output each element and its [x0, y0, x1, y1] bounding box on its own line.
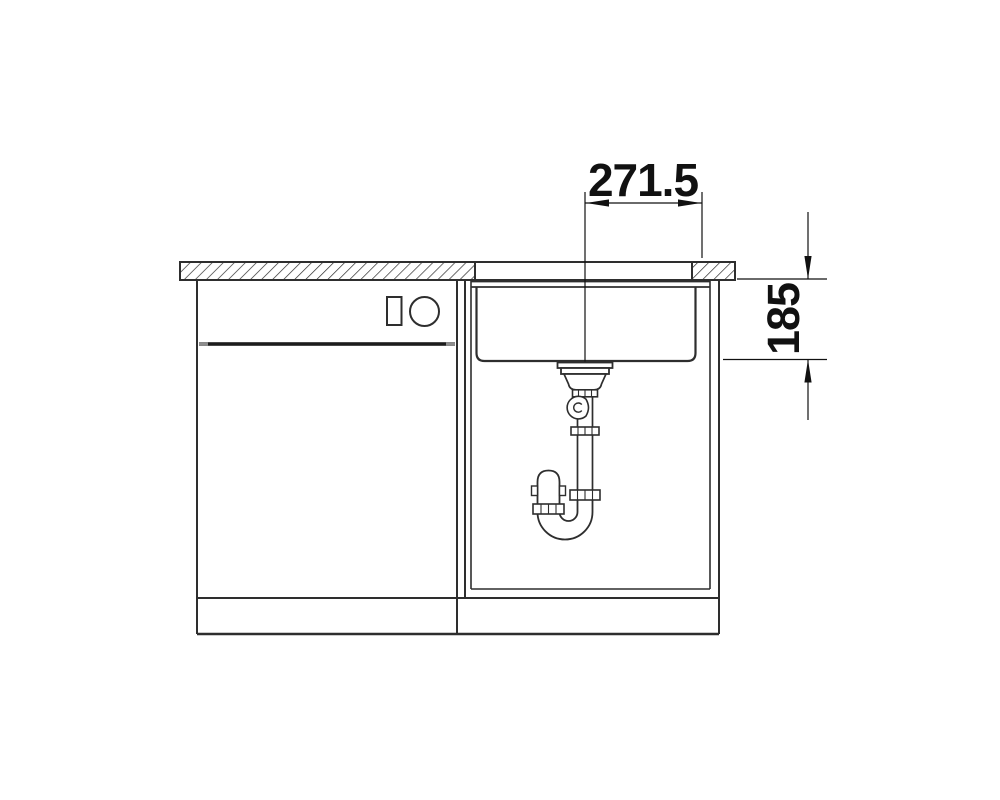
pipe-nut-middle	[570, 490, 600, 500]
sink-basin-outline	[477, 287, 696, 361]
strainer-flange-lower	[561, 368, 609, 374]
left-cabinet	[197, 280, 457, 634]
depth-dim-arrow-down	[804, 256, 811, 279]
countertop-section-middle	[475, 262, 692, 280]
sink-basin	[471, 282, 710, 362]
countertop	[180, 262, 735, 280]
pipe-nut-upper	[571, 427, 599, 435]
door-gap-line	[199, 342, 455, 346]
overflow-elbow	[567, 396, 588, 419]
countertop-section-left-hatch	[180, 262, 475, 280]
depth-dim-arrow-up	[804, 360, 811, 383]
width-dimension: 271.5	[585, 154, 702, 363]
drain-assembly	[532, 363, 613, 540]
width-dimension-label: 271.5	[588, 154, 699, 206]
sink-installation-drawing: 271.5 185	[0, 0, 1000, 800]
trap-cap-nut-left	[532, 486, 538, 496]
appliance-knob-symbol	[410, 297, 439, 326]
trap-cap-nut-right	[560, 486, 566, 496]
sink-section-diagram: 271.5 185	[0, 0, 1000, 800]
depth-dimension: 185	[723, 212, 827, 420]
drain-pipe	[578, 435, 593, 490]
structure-group	[180, 262, 735, 634]
countertop-section-right-hatch	[692, 262, 735, 280]
appliance-button-symbol	[387, 297, 402, 325]
depth-dimension-label: 185	[758, 283, 809, 355]
strainer-body	[564, 374, 606, 390]
trap-nut	[533, 504, 564, 514]
